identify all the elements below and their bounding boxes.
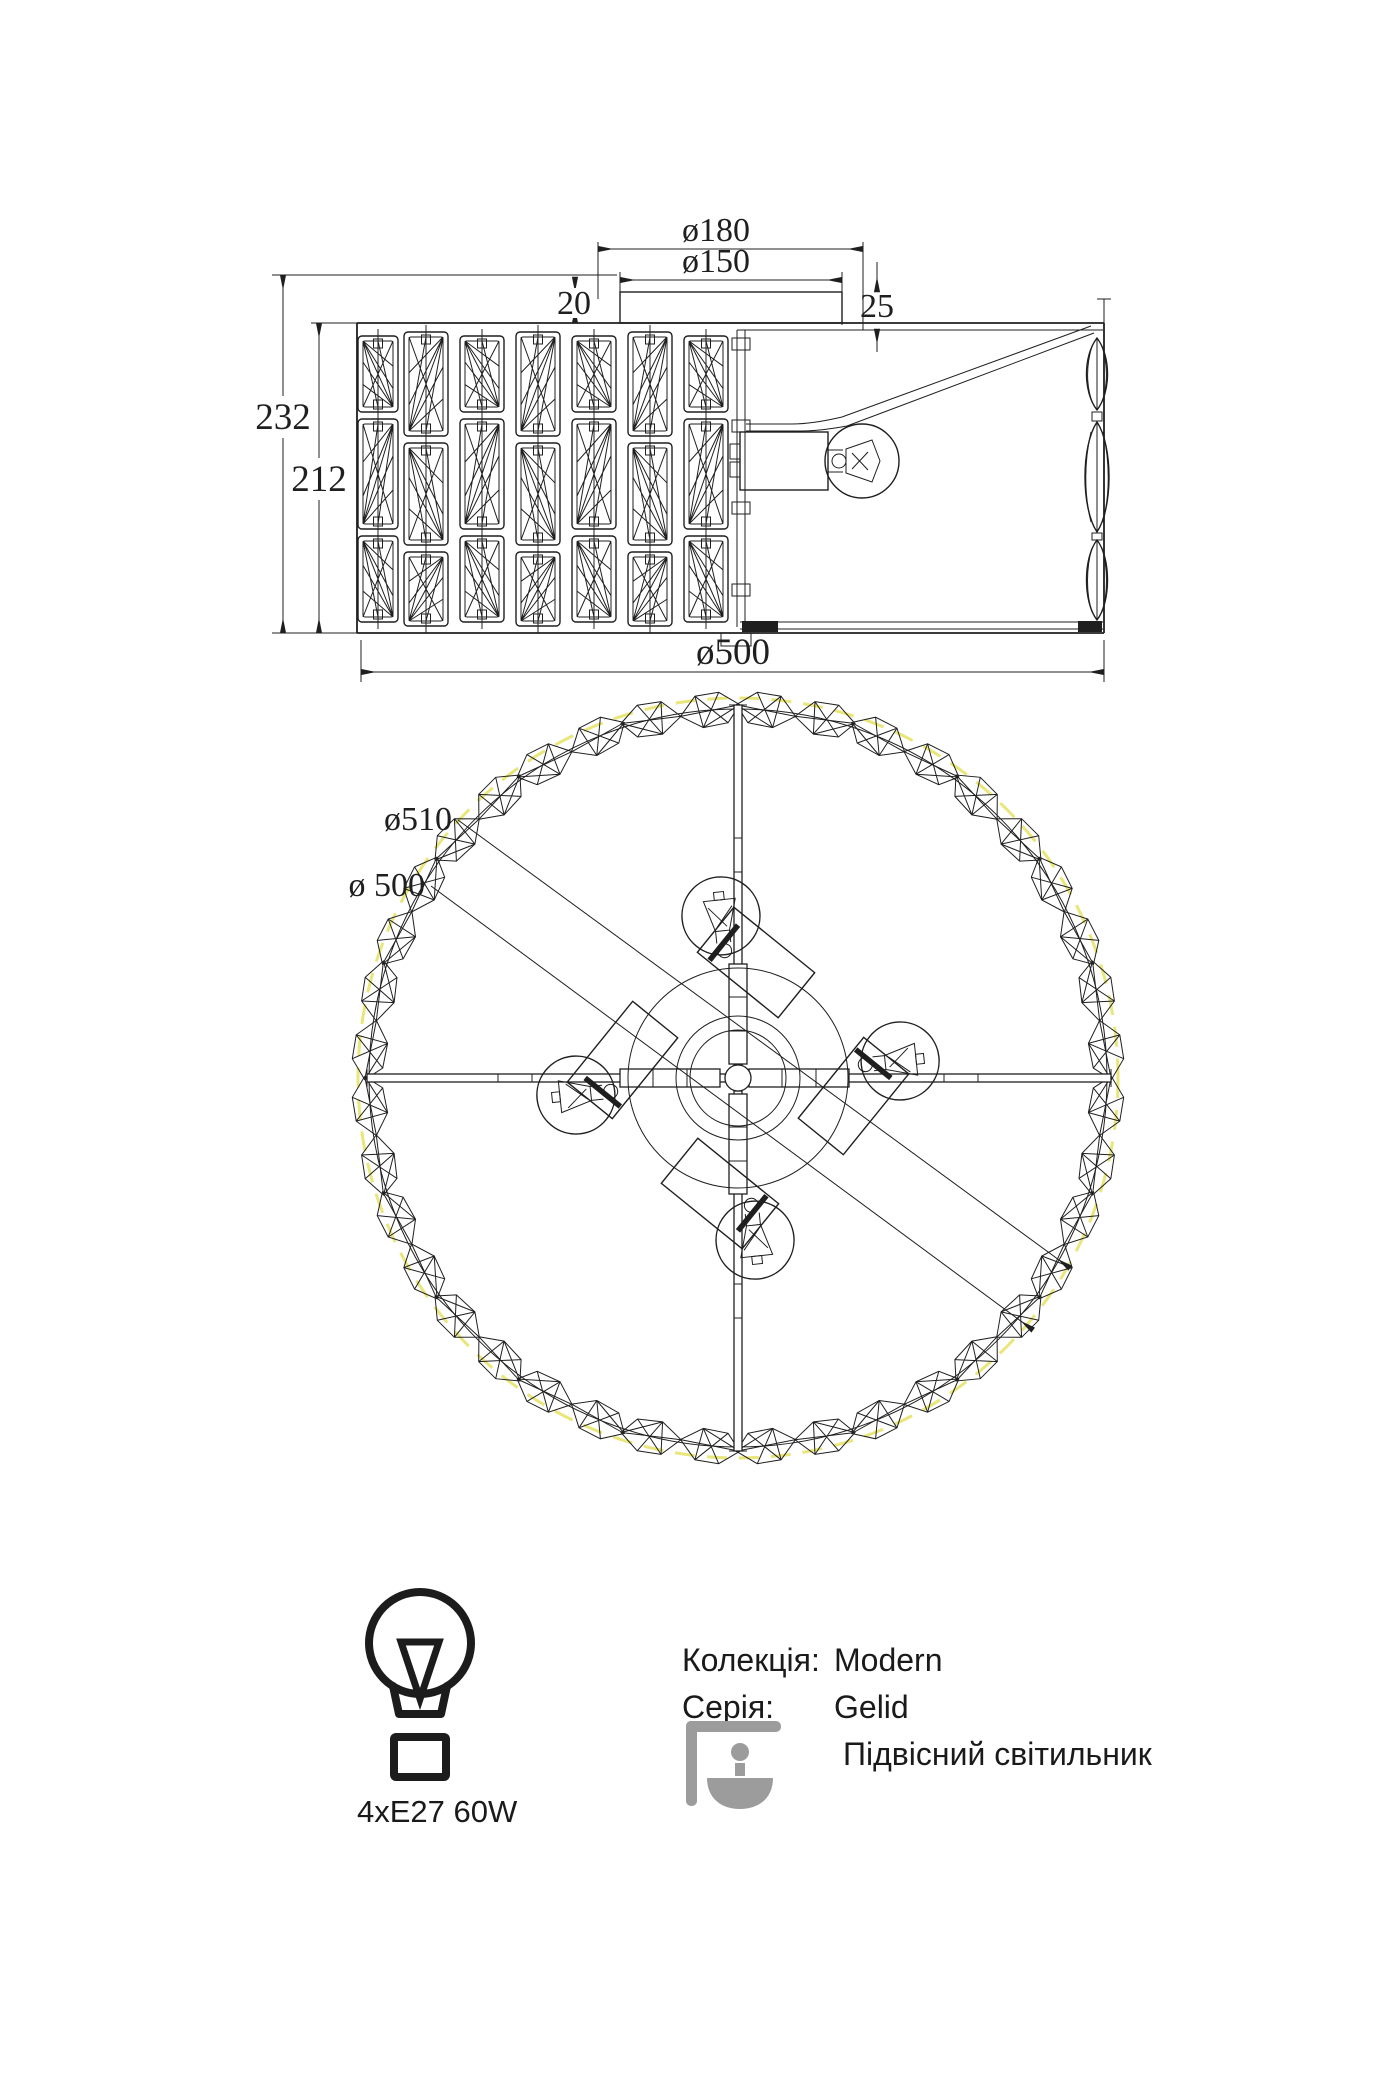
dim-label-20: 20 xyxy=(557,285,591,322)
dim-label-232: 232 xyxy=(255,397,311,438)
ring-gem xyxy=(479,1337,521,1381)
crystal-panel xyxy=(684,412,728,536)
crystal-panel xyxy=(358,329,398,419)
dim-label-212: 212 xyxy=(291,459,347,500)
bulb-assembly xyxy=(657,1129,798,1288)
side-view: ø180 ø150 20 25 232 212 xyxy=(255,212,1111,682)
spec-section: 4xE27 60W xyxy=(357,1592,518,1829)
bulb-symbol-side xyxy=(825,424,899,498)
drawing-canvas: ø180 ø150 20 25 232 212 xyxy=(0,0,1400,2100)
technical-drawing-page: ø180 ø150 20 25 232 212 xyxy=(0,0,1400,2100)
pendant-mount-icon xyxy=(686,1721,781,1809)
socket-box xyxy=(740,432,828,490)
dim-label-d500-side: ø500 xyxy=(696,632,770,673)
crystal-panel xyxy=(572,329,616,419)
canopy-plate xyxy=(620,292,842,323)
bottom-dimensions: ø510 ø 500 xyxy=(349,801,1071,1330)
crystal-panel xyxy=(460,529,504,629)
crystal-panel xyxy=(572,412,616,536)
crystal-panel xyxy=(358,412,398,536)
crystal-panel-grid xyxy=(358,325,728,633)
series-label: Серія: xyxy=(682,1689,774,1725)
crystal-panel xyxy=(404,325,448,443)
crystal-panel xyxy=(404,436,448,552)
crystal-panel xyxy=(628,545,672,633)
crystal-panel xyxy=(516,545,560,633)
crystal-panel xyxy=(358,529,398,629)
crystal-panel xyxy=(460,329,504,419)
crystal-panel xyxy=(628,325,672,443)
dim-label-25: 25 xyxy=(860,288,894,325)
crystal-panel xyxy=(628,436,672,552)
collection-label: Колекція: xyxy=(682,1642,820,1678)
side-crystals xyxy=(1085,338,1109,620)
ring-gem xyxy=(479,775,521,819)
crystal-panel xyxy=(572,529,616,629)
collection-value: Modern xyxy=(834,1642,943,1678)
crystal-panel xyxy=(684,329,728,419)
dim-label-d150: ø150 xyxy=(682,243,750,280)
type-value: Підвісний світильник xyxy=(843,1736,1153,1772)
center-pin xyxy=(725,1065,751,1091)
series-value: Gelid xyxy=(834,1689,909,1725)
product-info: Колекція: Modern Серія: Gelid Підвісний … xyxy=(682,1642,1153,1809)
bulb-assembly xyxy=(789,1018,948,1159)
crystal-panel xyxy=(516,436,560,552)
ring-gem xyxy=(955,775,997,819)
bottom-view: ø510 ø 500 xyxy=(349,692,1124,1463)
crystal-panel xyxy=(516,325,560,443)
bottom-clamp-left xyxy=(742,621,778,632)
bulb-assembly xyxy=(678,868,819,1027)
crystal-panel xyxy=(684,529,728,629)
bulb-assembly xyxy=(528,997,687,1138)
crystal-panel xyxy=(404,545,448,633)
lamp-interior xyxy=(730,326,1094,498)
bottom-clamp-right xyxy=(1078,621,1102,632)
dim-label-d510: ø510 xyxy=(384,801,452,838)
ring-gem xyxy=(517,1371,572,1412)
bulb-spec-label: 4xE27 60W xyxy=(357,1794,518,1829)
dim-label-d500-bottom: ø 500 xyxy=(349,867,426,904)
crystal-panel xyxy=(460,412,504,536)
bulb-icon xyxy=(369,1592,471,1777)
